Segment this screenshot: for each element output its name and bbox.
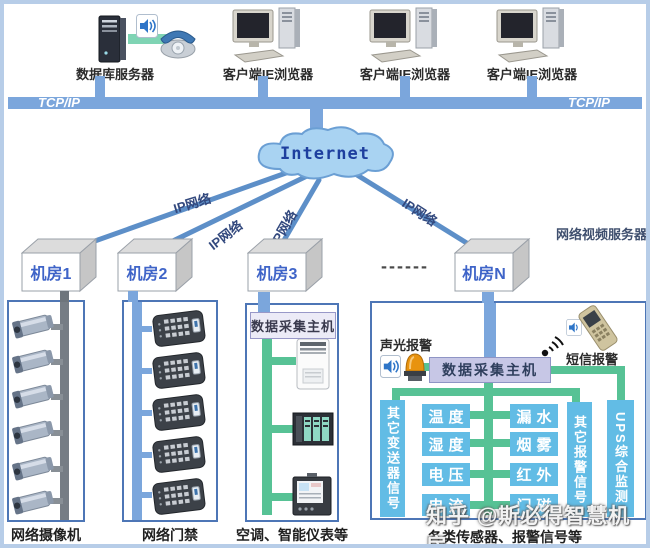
keypad-icon <box>150 478 208 516</box>
row-stub <box>468 439 486 447</box>
camera-icon <box>11 380 57 410</box>
internet-label: Internet <box>262 144 388 164</box>
video-server-label: 网络视频服务器 <box>556 224 647 243</box>
access-panel <box>122 300 218 522</box>
mobile-phone-icon <box>576 301 620 355</box>
row-stub <box>491 470 512 478</box>
watermark: 知乎 @斯必得智慧机房 <box>426 500 650 548</box>
tcpip-bus-bar <box>8 97 642 109</box>
sensor-panel: 声光报警 数据采集主机 <box>370 301 647 520</box>
camera-panel <box>7 300 85 522</box>
keypad-icon <box>150 310 208 348</box>
humidity-box: 湿度 <box>422 432 470 456</box>
rooms-ellipsis: ------ <box>365 256 445 277</box>
other-transmitter-box: 其它变送器信号 <box>380 400 405 517</box>
collect-panel: 数据采集主机 <box>245 303 339 522</box>
room-cube-1: 机房1 <box>21 238 99 294</box>
collect-host-box: 数据采集主机 <box>250 312 336 339</box>
network-architecture-diagram: 数据库服务器 客户端IE浏览器 客户端IE浏览器 客户端IE浏览器 TCP/IP <box>0 0 650 548</box>
antenna-signal-icon <box>538 329 566 359</box>
sensor-host-box: 数据采集主机 <box>429 357 551 383</box>
camera-bus-line <box>60 302 69 520</box>
plc-module-icon <box>291 407 335 451</box>
keypad-icon <box>150 352 208 390</box>
room-cube-2: 机房2 <box>117 238 195 294</box>
room-cube-3: 机房3 <box>247 238 325 294</box>
room3-panel-stub <box>258 292 270 312</box>
air-conditioner-icon <box>293 337 333 391</box>
keypad-icon <box>150 436 208 474</box>
roomn-panel-stub <box>482 292 494 303</box>
tcpip-label-left: TCP/IP <box>38 96 80 109</box>
row-stub <box>491 411 512 419</box>
camera-icon <box>11 416 57 446</box>
temperature-box: 温度 <box>422 404 470 428</box>
room-3-label: 机房3 <box>248 253 306 291</box>
speaker-icon <box>380 355 401 378</box>
sensor-host-stub <box>484 303 496 357</box>
ups-link-vertical <box>617 366 625 400</box>
room-cube-n: 机房N <box>454 238 532 294</box>
voltage-box: 电压 <box>422 463 470 486</box>
camera-icon <box>11 452 57 482</box>
room1-panel-stub <box>60 291 69 302</box>
room-n-label: 机房N <box>455 253 513 291</box>
smoke-box: 烟雾 <box>510 432 558 456</box>
camera-icon <box>11 310 57 340</box>
sensor-trunk <box>484 381 493 515</box>
camera-icon <box>11 345 57 375</box>
camera-icon <box>11 486 57 516</box>
keypad-icon <box>150 394 208 432</box>
telephone-icon <box>158 22 198 60</box>
room-2-label: 机房2 <box>118 253 176 291</box>
recorder-meter-icon <box>290 473 334 519</box>
speaker-icon <box>136 14 158 38</box>
collect-trunk-line <box>262 331 272 515</box>
sms-alarm-label: 短信报警 <box>566 349 618 368</box>
row-stub <box>468 411 486 419</box>
infrared-box: 红外 <box>510 463 558 486</box>
beacon-light-icon <box>402 349 428 383</box>
tcpip-label-right: TCP/IP <box>568 96 610 109</box>
room2-panel-stub <box>128 291 138 302</box>
water-leak-box: 漏水 <box>510 404 558 428</box>
row-stub <box>468 470 486 478</box>
database-server-icon <box>94 12 130 66</box>
row-stub <box>491 439 512 447</box>
room-1-label: 机房1 <box>22 253 80 291</box>
